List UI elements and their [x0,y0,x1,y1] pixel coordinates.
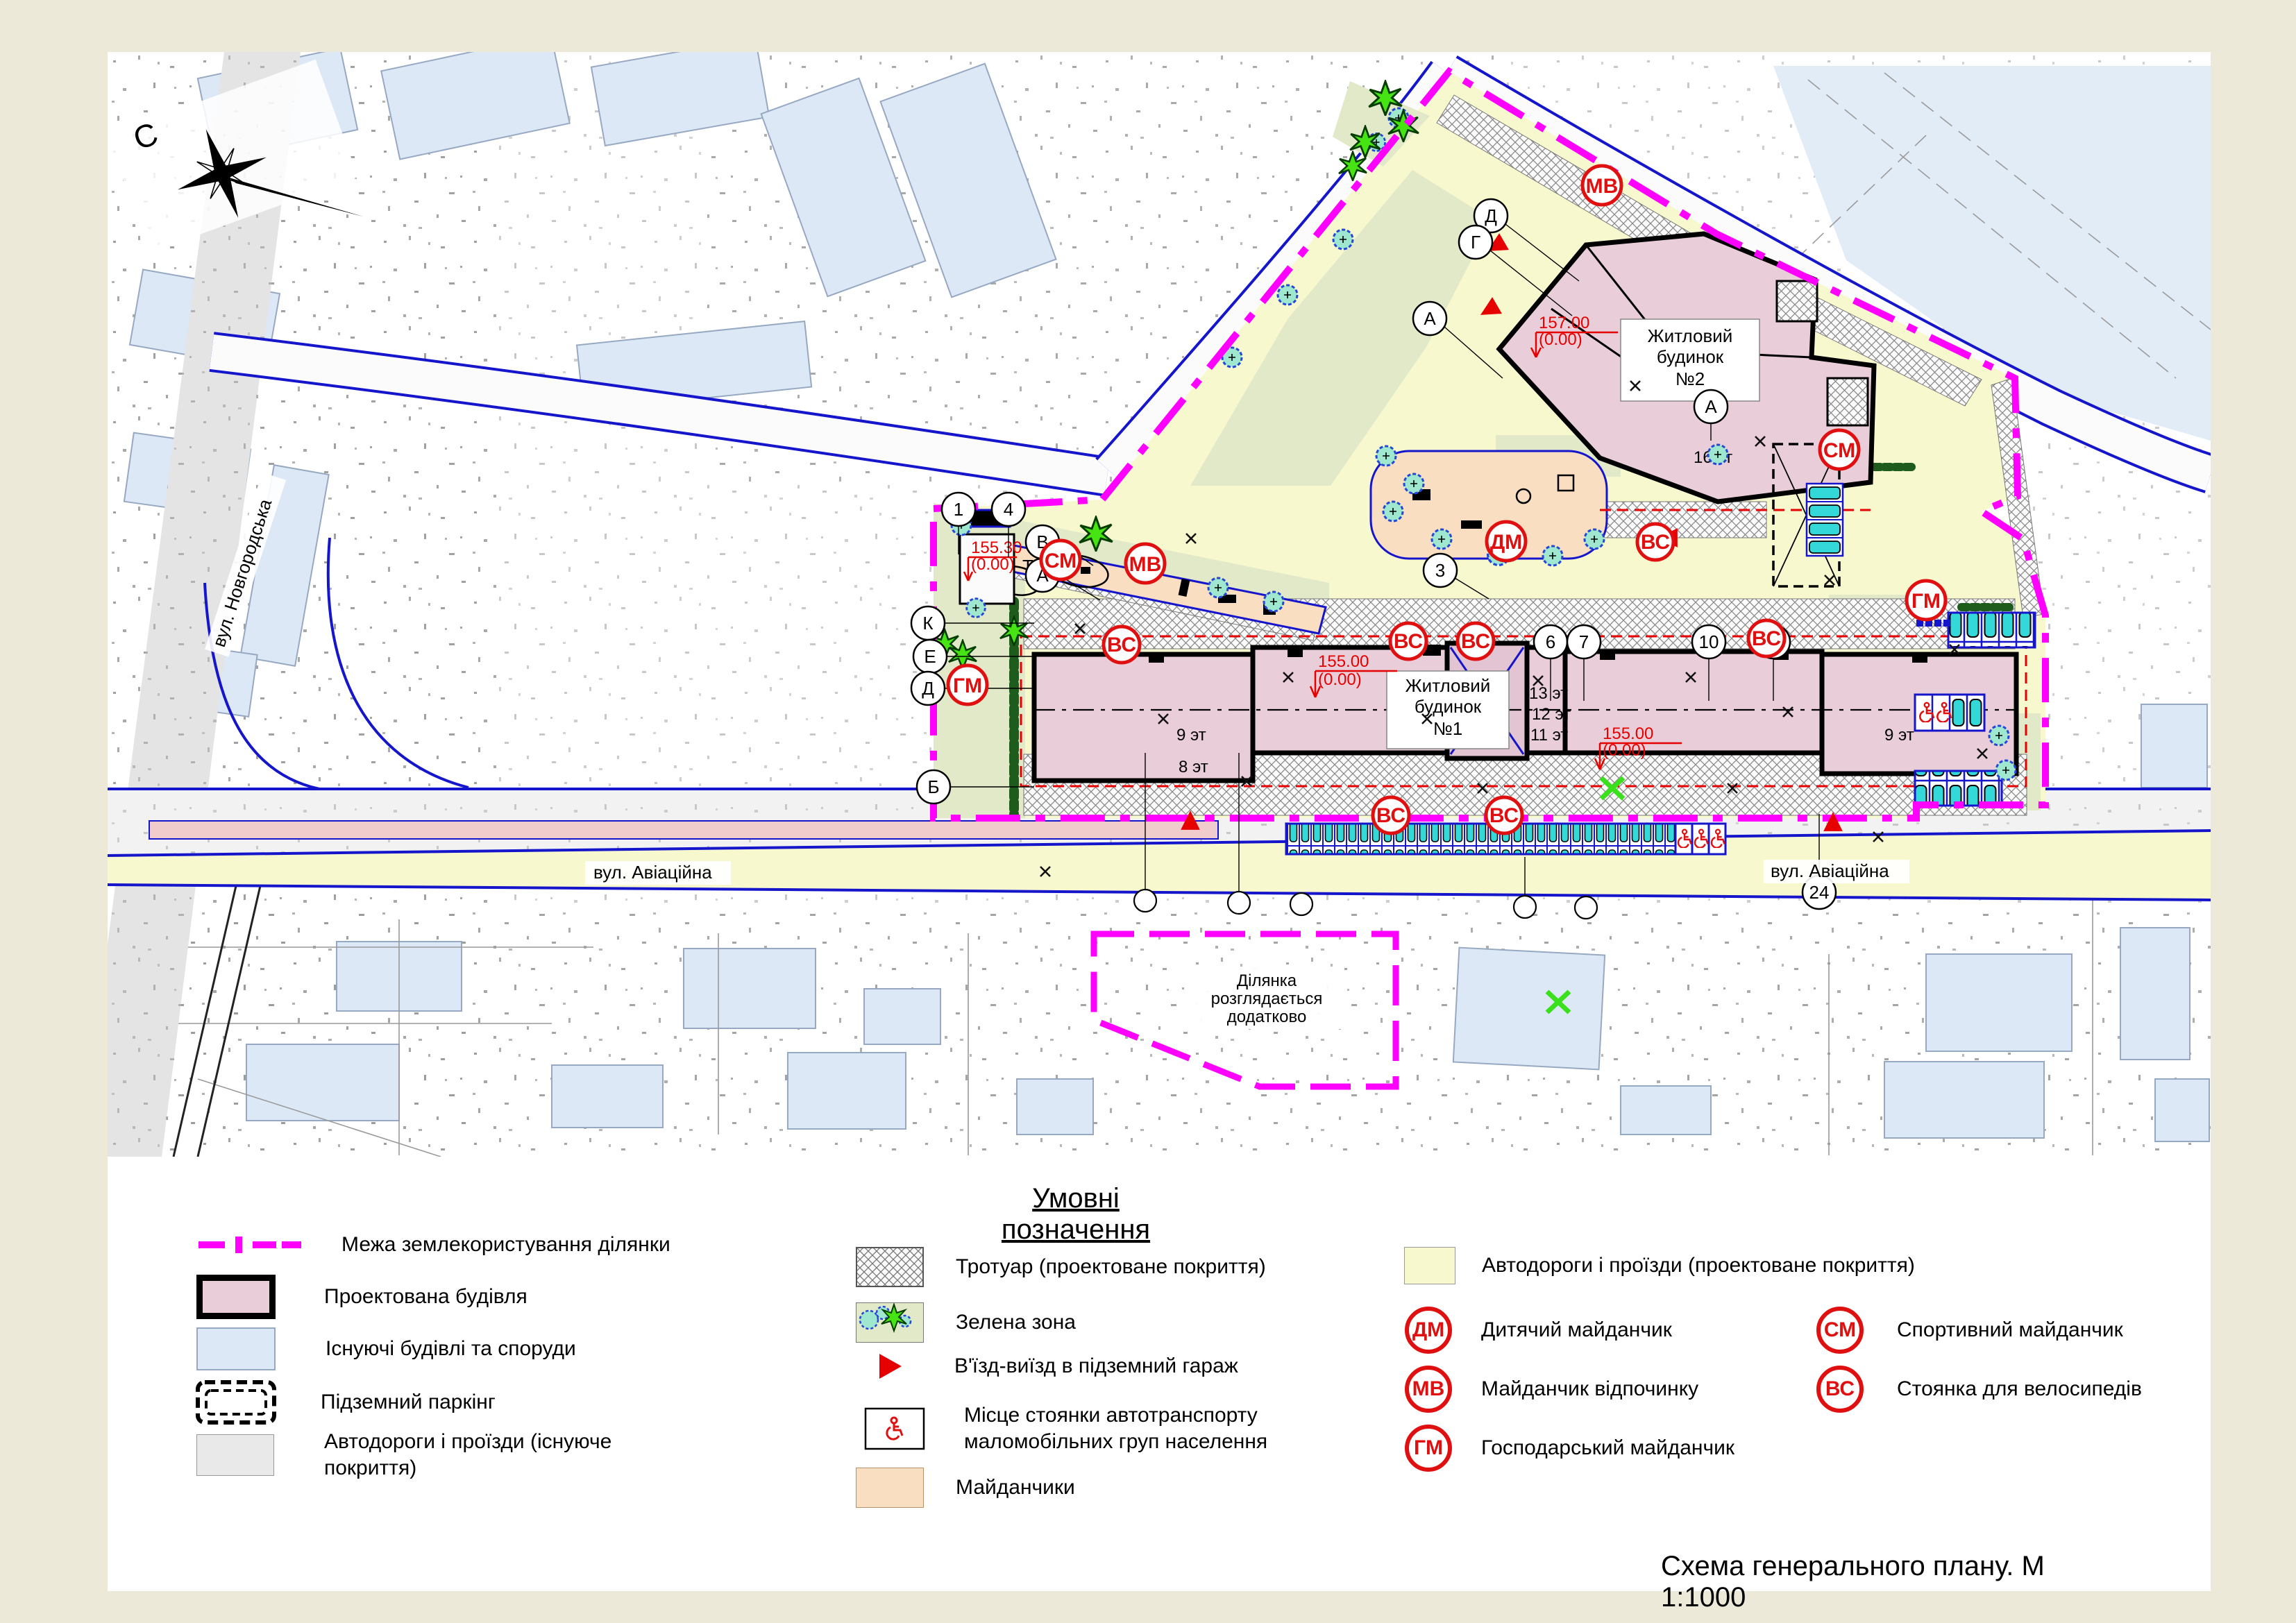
building-1-label-line3: №1 [1433,718,1462,739]
street-label-aviatsiina-2: вул. Авіаційна [1771,860,1889,881]
sidewalk-hatch-icon [856,1247,924,1287]
building-2-label-line3: №2 [1675,368,1705,389]
legend-item-projected-roads: Автодороги і проїзди (проектоване покрит… [1404,1247,2009,1284]
legend-title: Умовні позначення [961,1183,1190,1246]
axis-letter: А [1705,396,1717,417]
legend-item-existing-roads: Автодороги і проїзди (існуюче покриття) [196,1429,685,1481]
elev-b1l-bottom: (0.00) [1318,670,1362,689]
axis-letter: Г [1471,232,1480,253]
legend-label: Підземний паркінг [321,1389,654,1416]
marker-dm-icon: ДМ [1405,1307,1452,1354]
marker-vs: ВС [1394,630,1423,653]
marker-vs: ВС [1461,630,1490,653]
legend-item-garage-entry: В'їзд-виїзд в підземний гараж [877,1351,1343,1382]
legend-item-marker-gm: ГМ Господарський майданчик [1405,1425,1773,1472]
legend-label: В'їзд-виїзд в підземний гараж [954,1353,1343,1379]
marker-sm: СМ [1045,550,1077,572]
garage-entry-triangle-icon [877,1351,904,1382]
legend-label: Стоянка для велосипедів [1897,1376,2188,1402]
legend-label: Майданчик відпочинку [1481,1376,1773,1402]
legend-label: Проектована будівля [324,1284,657,1310]
map-area: Житловий будинок №1 9 эт 8 эт 13 эт 12 э… [108,52,2211,1157]
elev-b1l-top: 155.00 [1318,652,1369,671]
accessible-stalls [1675,824,1725,854]
legend-label: Тротуар (проектоване покриття) [956,1254,1344,1280]
axis-letter: К [922,613,933,634]
axis-letter: Е [924,646,936,667]
marker-vs: ВС [1641,531,1670,554]
legend-item-marker-mv: МВ Майданчик відпочинку [1405,1366,1773,1413]
drawing-page: Житловий будинок №1 9 эт 8 эт 13 эт 12 э… [0,0,2296,1623]
legend-item-disabled-parking: Місце стоянки автотранспорту маломобільн… [864,1402,1353,1454]
marker-vs: ВС [1489,804,1519,827]
note-line1: Ділянка [1237,971,1297,990]
playground-swatch-icon [856,1468,924,1508]
elev-b1r-top: 155.00 [1603,724,1653,743]
legend-item-marker-vs: ВС Стоянка для велосипедів [1816,1366,2188,1413]
marker-gm: ГМ [1911,590,1941,613]
marker-mv-icon: МВ [1405,1366,1452,1413]
note-line3: додатково [1227,1008,1307,1026]
marker-vs: ВС [1376,804,1406,827]
legend-label: Зелена зона [956,1309,1344,1336]
axis-number: 7 [1579,631,1589,652]
site-plan-map: Житловий будинок №1 9 эт 8 эт 13 эт 12 э… [108,52,2211,1157]
accessible-stalls-right [1915,695,1984,731]
elev-b2-top: 157.00 [1539,314,1589,332]
legend-item-existing-buildings: Існуючі будівлі та споруди [196,1327,659,1370]
axis-number: 3 [1435,560,1445,581]
existing-building-swatch-icon [196,1327,276,1370]
legend-label: Дитячий майданчик [1481,1317,1773,1343]
marker-gm: ГМ [953,674,982,697]
axis-number: 10 [1699,631,1719,652]
building-1-label-line1: Житловий [1406,675,1491,696]
b1-floors-11: 11 эт [1530,726,1568,745]
legend-label: Автодороги і проїзди (проектоване покрит… [1482,1252,2009,1279]
legend-label: Автодороги і проїзди (існуюче покриття) [324,1429,685,1481]
legend-item-green-zone: Зелена зона [856,1302,1344,1343]
marker-sm-icon: СМ [1816,1307,1864,1354]
legend-item-playgrounds: Майданчики [856,1468,1344,1508]
existing-road-swatch-icon [196,1434,274,1476]
marker-vs-icon: ВС [1816,1366,1864,1413]
marker-dm: ДМ [1490,531,1522,554]
marker-mv: МВ [1129,553,1162,576]
legend-item-marker-sm: СМ Спортивний майданчик [1816,1307,2188,1354]
green-zone-swatch-icon [856,1302,924,1343]
legend-label: Існуючі будівлі та споруди [326,1336,659,1362]
axis-letter: Б [927,776,939,797]
legend-item-sidewalk: Тротуар (проектоване покриття) [856,1247,1344,1287]
axis-letter: Д [922,678,934,699]
additional-area-note: Ділянка розглядається додатково [1189,968,1344,1029]
legend-label: Межа землекористування ділянки [341,1232,675,1258]
legend-item-projected-building: Проектована будівля [196,1275,657,1319]
drawing-title: Схема генерального плану. М 1:1000 [1661,1551,2105,1613]
axis-number: 6 [1546,631,1555,652]
parking-column-b2 [1807,484,1843,556]
projected-building-swatch-icon [196,1275,276,1319]
legend-label: Господарський майданчик [1481,1435,1773,1461]
marker-vs: ВС [1107,634,1136,656]
elev-tp-top: 155.30 [971,538,1022,557]
axis-number: 1 [954,499,963,520]
underground-parking-icon [194,1379,278,1426]
legend-label: Спортивний майданчик [1897,1317,2188,1343]
marker-mv: МВ [1586,175,1619,198]
b1-floors-8: 8 эт [1179,758,1208,776]
building-1-label-line2: будинок [1415,696,1482,717]
legend-item-marker-dm: ДМ Дитячий майданчик [1405,1307,1773,1354]
legend-item-underground-parking: Підземний паркінг [194,1379,654,1426]
marker-vs: ВС [1752,627,1781,650]
building-2-label-line2: будинок [1657,346,1724,367]
note-line2: розглядається [1211,989,1323,1008]
drawing-sheet: Житловий будинок №1 9 эт 8 эт 13 эт 12 э… [108,52,2211,1591]
street-label-aviatsiina-1: вул. Авіаційна [593,862,712,883]
axis-letter: А [1424,308,1436,329]
legend-item-boundary: Межа землекористування ділянки [194,1232,675,1258]
axis-letter: Д [1485,205,1497,226]
disabled-parking-icon [864,1407,925,1450]
b1-floors-13: 13 эт [1529,684,1568,703]
marker-sm: СМ [1823,439,1855,462]
building-2-label-line1: Житловий [1648,325,1733,346]
boundary-line-icon [194,1233,305,1257]
existing-lane-band [149,821,1218,839]
legend-label: Місце стоянки автотранспорту маломобільн… [964,1402,1353,1454]
marker-gm-icon: ГМ [1405,1425,1452,1472]
b1-floors-9: 9 эт [1176,726,1206,745]
b1-floors-9r: 9 эт [1884,726,1914,745]
legend-label: Майданчики [956,1475,1344,1501]
projected-road-swatch-icon [1404,1247,1455,1284]
axis-number: 4 [1004,499,1013,520]
b1-floors-12: 12 эт [1532,705,1571,724]
axis-number: 24 [1809,882,1830,903]
